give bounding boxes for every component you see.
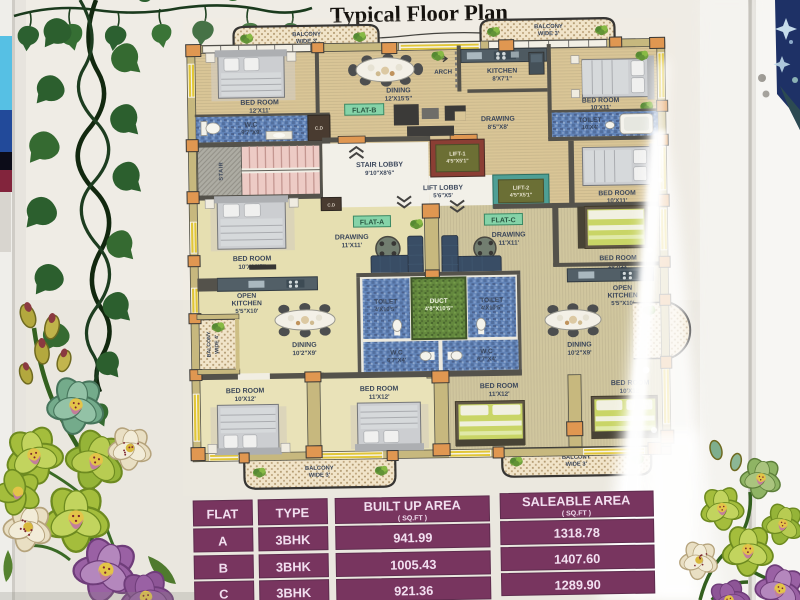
svg-text:FLAT: FLAT <box>206 506 238 522</box>
svg-text:1289.90: 1289.90 <box>554 577 601 593</box>
svg-text:TYPE: TYPE <box>276 505 310 521</box>
svg-text:SALEABLE AREA: SALEABLE AREA <box>522 492 631 509</box>
svg-text:1005.43: 1005.43 <box>390 557 437 573</box>
svg-text:1407.60: 1407.60 <box>554 551 601 567</box>
svg-text:3BHK: 3BHK <box>276 585 312 600</box>
svg-text:B: B <box>219 560 229 575</box>
svg-text:1318.78: 1318.78 <box>553 525 600 541</box>
svg-text:3BHK: 3BHK <box>276 559 312 575</box>
svg-text:941.99: 941.99 <box>393 530 432 546</box>
svg-text:( SQ.FT ): ( SQ.FT ) <box>562 510 591 518</box>
svg-text:A: A <box>218 533 228 548</box>
svg-text:C: C <box>219 586 229 600</box>
svg-text:BUILT UP AREA: BUILT UP AREA <box>364 497 461 514</box>
svg-text:( SQ.FT ): ( SQ.FT ) <box>398 515 427 523</box>
svg-text:921.36: 921.36 <box>394 583 433 599</box>
svg-text:3BHK: 3BHK <box>275 532 311 548</box>
